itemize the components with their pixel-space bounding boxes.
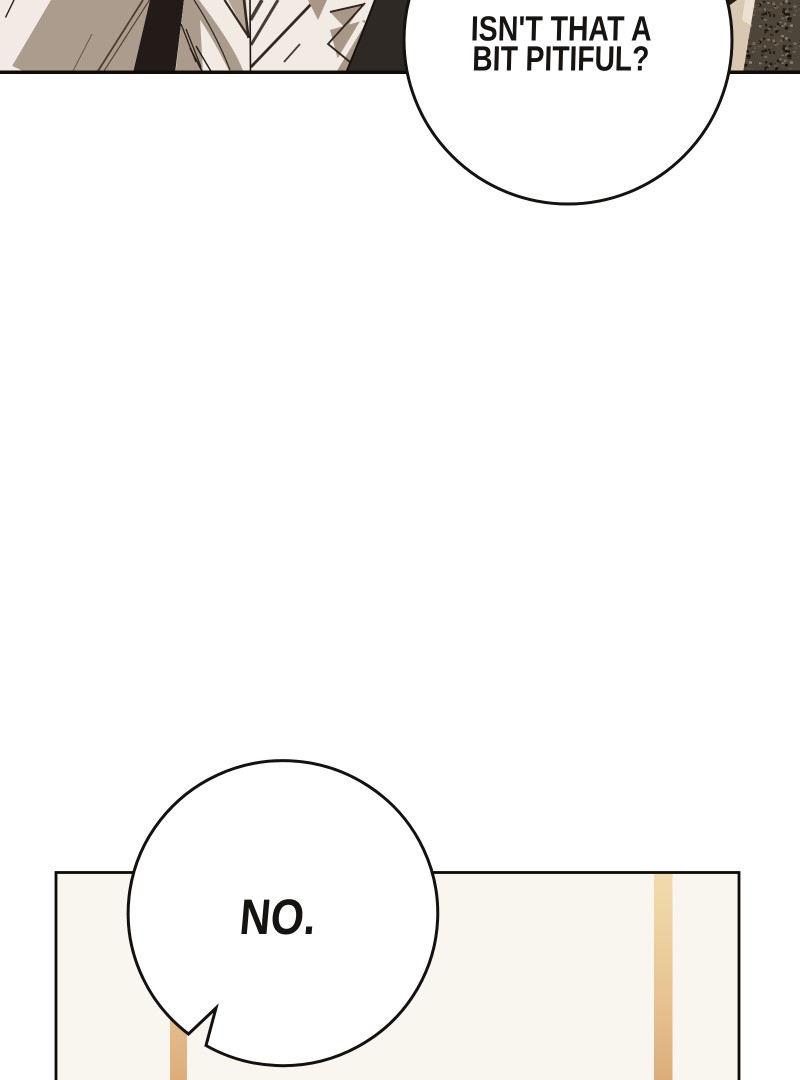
svg-text:NO.: NO. [238, 889, 319, 945]
svg-text:BIT PITIFUL?: BIT PITIFUL? [472, 40, 650, 79]
